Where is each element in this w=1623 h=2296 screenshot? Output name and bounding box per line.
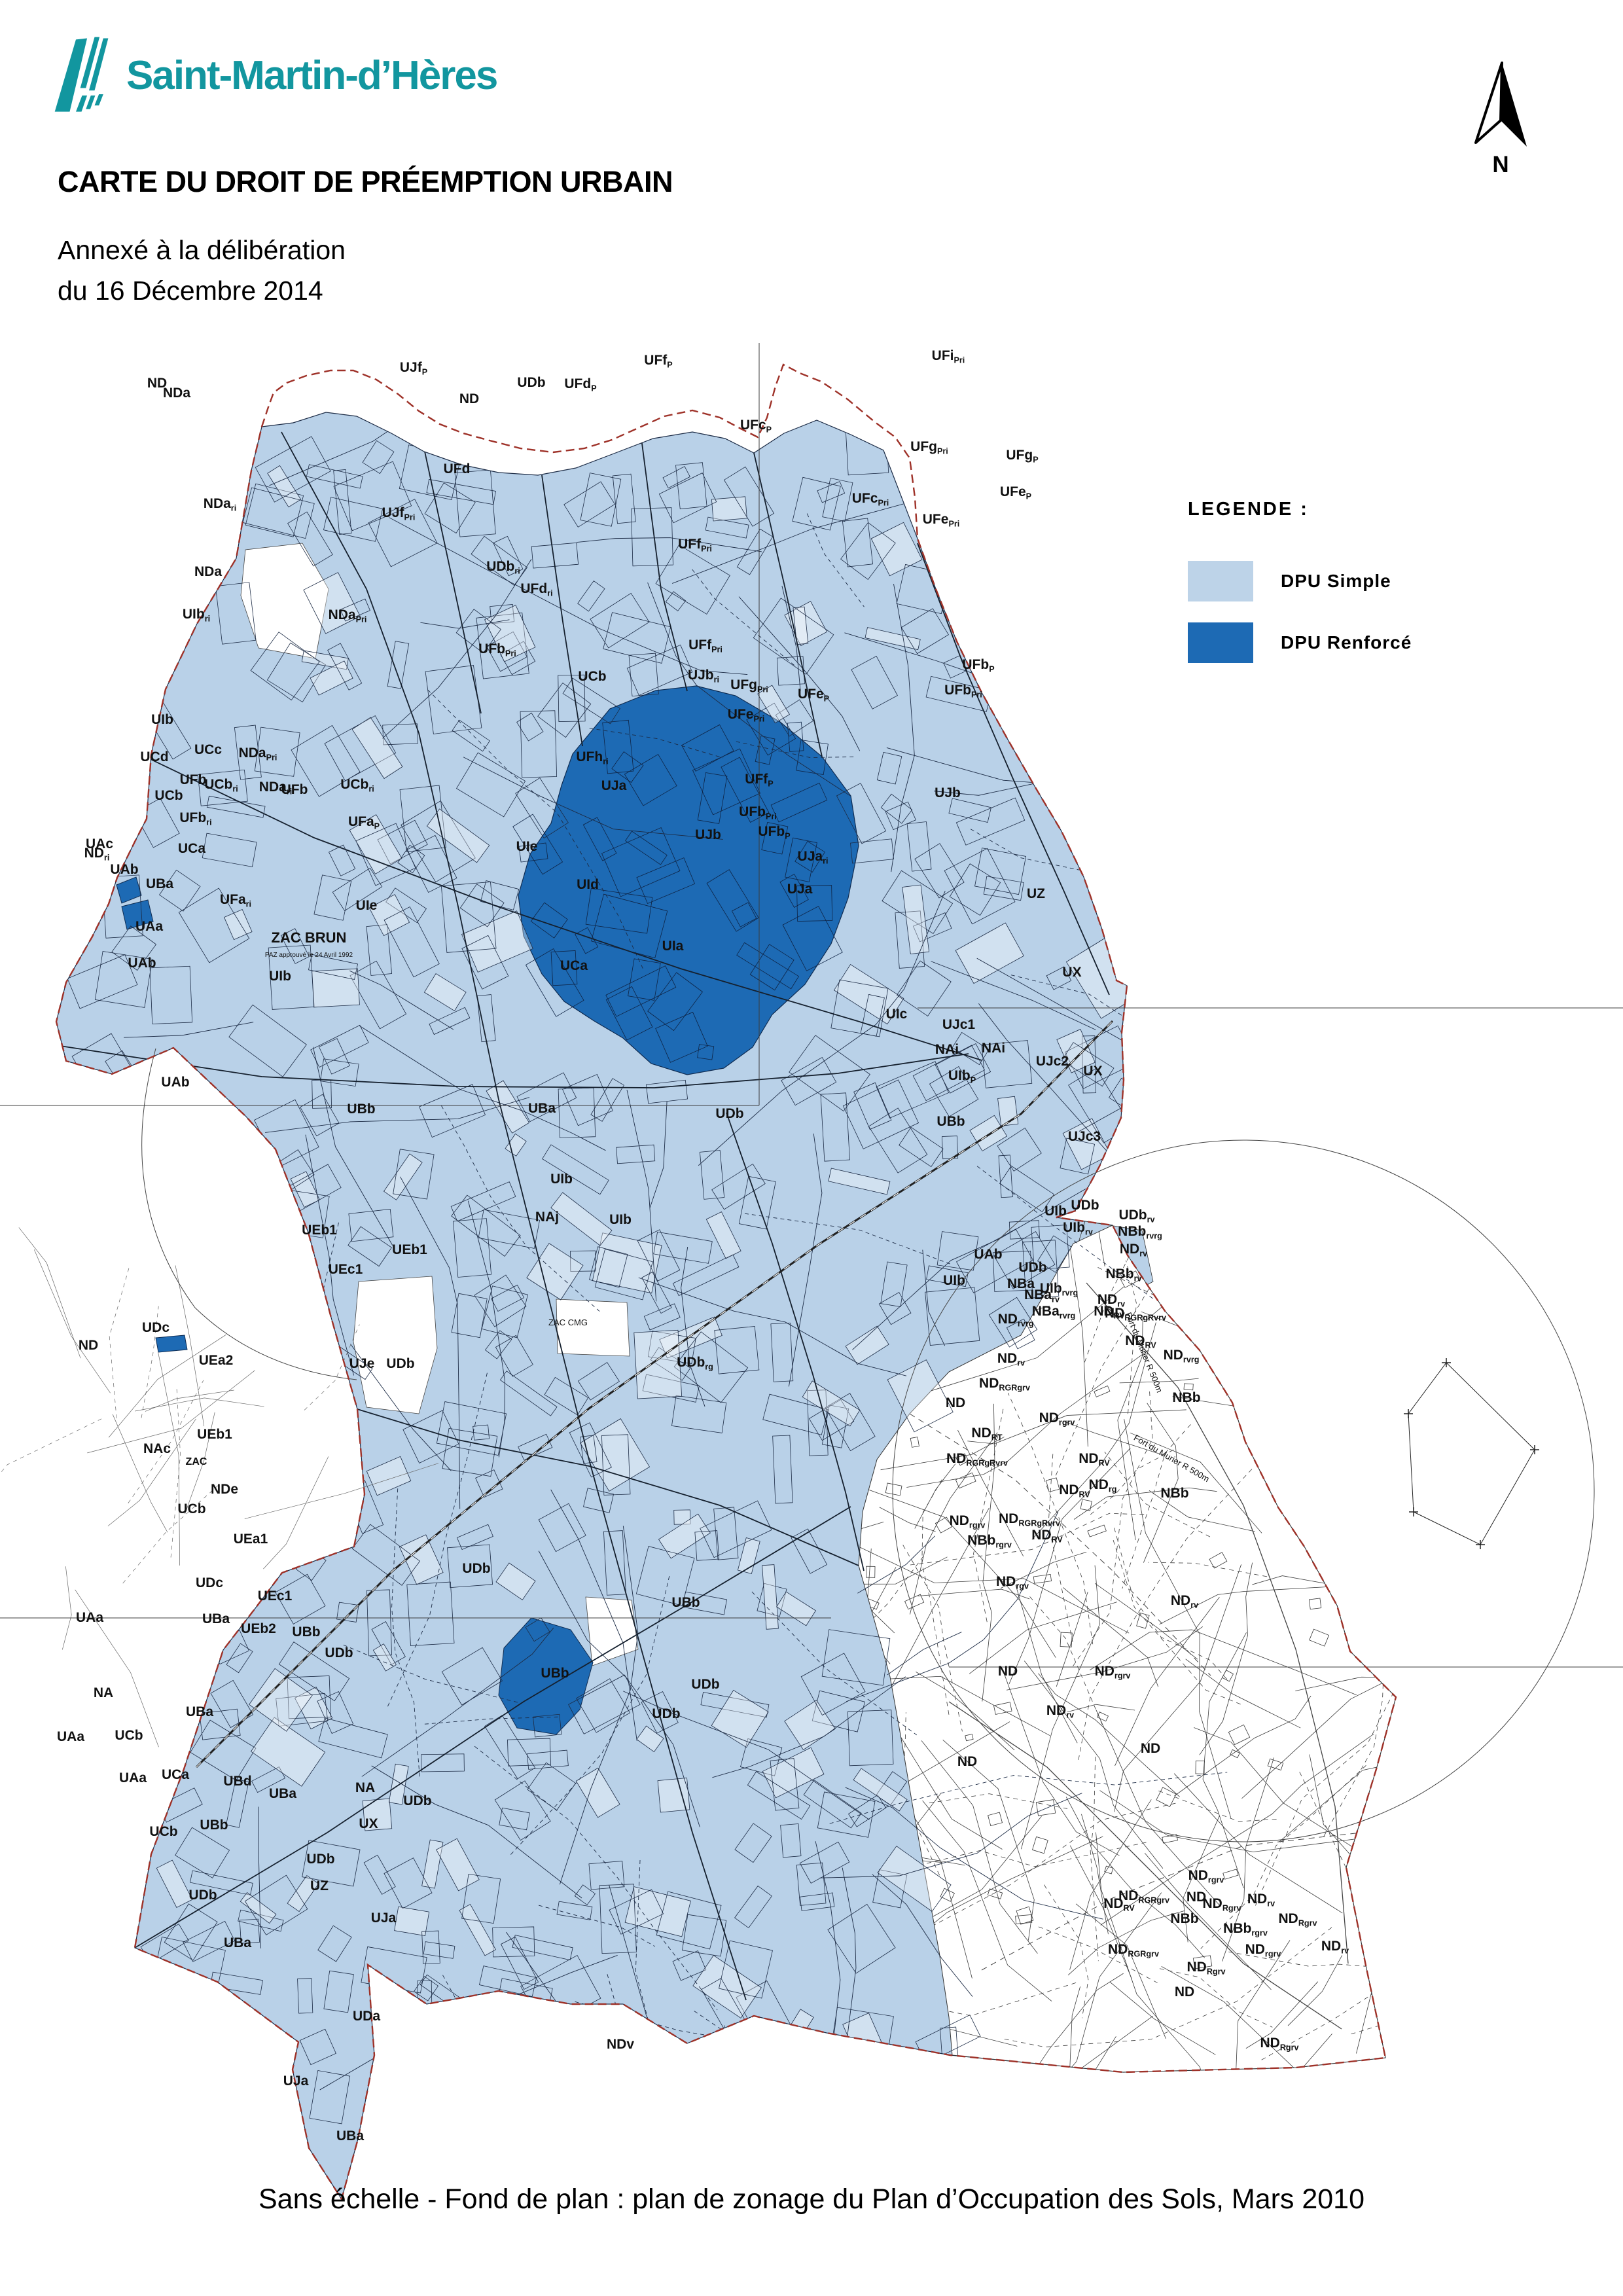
- zone-label: NDe: [211, 1482, 238, 1497]
- zone-label: UDc: [142, 1320, 169, 1335]
- zone-label: UEa2: [199, 1353, 234, 1368]
- legend-label-simple: DPU Simple: [1281, 571, 1391, 592]
- zone-label: UDb: [652, 1706, 680, 1721]
- zone-label: UX: [1083, 1064, 1102, 1079]
- zone-label: UEb1: [197, 1427, 232, 1442]
- zone-label: UDb: [306, 1852, 334, 1867]
- zone-label: UCb: [115, 1728, 143, 1743]
- zone-label: UAb: [128, 956, 156, 971]
- zone-label: UFgP: [1006, 448, 1038, 465]
- zone-label: UJa: [371, 1910, 397, 1926]
- zone-label: NBbrvrg: [1118, 1224, 1162, 1241]
- legend-item-renforce: DPU Renforcé: [1188, 622, 1412, 663]
- zone-label: PAZ approuvé le 24 Avril 1992: [265, 952, 353, 959]
- zone-label: UJa: [601, 778, 627, 793]
- north-indicator: N: [1465, 60, 1537, 178]
- subtitle: Annexé à la délibération du 16 Décembre …: [58, 230, 346, 311]
- north-label: N: [1465, 152, 1537, 178]
- legend-item-simple: DPU Simple: [1188, 561, 1412, 601]
- zone-label: NDa: [163, 386, 190, 401]
- zone-label: UEc1: [329, 1262, 363, 1277]
- zone-label: ZAC BRUN: [272, 929, 347, 946]
- zone-label: UFdP: [564, 376, 596, 393]
- zone-label: UDb: [1018, 1260, 1046, 1275]
- zone-label: ND: [79, 1338, 98, 1353]
- zone-label: UDbrv: [1118, 1208, 1154, 1225]
- logo: Saint-Martin-d’Hères: [51, 31, 497, 120]
- zone-label: UJb: [695, 827, 721, 842]
- zone-label: UDc: [196, 1575, 223, 1590]
- zone-label: UEb2: [241, 1621, 276, 1636]
- legend: LEGENDE : DPU Simple DPU Renforcé: [1188, 499, 1412, 684]
- legend-swatch-renforce-icon: [1188, 622, 1253, 663]
- zone-label: UBb: [671, 1595, 700, 1610]
- zone-label: UBd: [223, 1774, 251, 1789]
- zone-label: UIb: [943, 1273, 965, 1288]
- zone-label: UIb: [1044, 1204, 1067, 1219]
- zone-label: UBb: [541, 1666, 569, 1681]
- zone-label: UBa: [336, 2128, 364, 2144]
- zone-label: UJc3: [1068, 1129, 1101, 1144]
- zone-label: ZAC CMG: [548, 1318, 588, 1327]
- zone-label: UCa: [560, 958, 588, 973]
- zone-label: UAa: [119, 1770, 147, 1785]
- zone-label: UEb1: [392, 1242, 427, 1257]
- zone-label: UFd: [444, 461, 471, 476]
- zone-label: NAi: [982, 1041, 1005, 1056]
- zone-label: UZ: [310, 1878, 329, 1893]
- zone-label: UAc: [86, 836, 113, 852]
- zone-label: UDb: [462, 1561, 490, 1576]
- zone-label: NDa: [194, 564, 222, 579]
- smh-logo-icon: [51, 31, 113, 120]
- zone-label: UIb: [151, 712, 173, 727]
- zone-label: UFgPri: [910, 439, 948, 456]
- zone-label: UDb: [1071, 1198, 1099, 1213]
- zone-label: UDb: [517, 375, 545, 390]
- zone-label: UBb: [200, 1818, 228, 1833]
- map-canvas: NDNDaUJfPUDbUFdPNDUFfPUFiPriUFcPUFgPUFgP…: [0, 0, 1623, 2296]
- zone-label: UBb: [292, 1624, 320, 1640]
- zone-label: UAb: [110, 862, 138, 877]
- zone-label: UAa: [57, 1729, 84, 1744]
- zone-label: UX: [1062, 965, 1081, 980]
- page-title: CARTE DU DROIT DE PRÉEMPTION URBAIN: [58, 165, 673, 199]
- zone-label: UDb: [715, 1106, 743, 1121]
- subtitle-line-1: Annexé à la délibération: [58, 230, 346, 271]
- zone-label: UJb: [935, 785, 961, 800]
- zone-label: UJc1: [942, 1017, 976, 1032]
- zone-label: UIb: [269, 969, 291, 984]
- zone-label: UAa: [76, 1610, 103, 1625]
- legend-label-renforce: DPU Renforcé: [1281, 632, 1412, 653]
- zone-label: ND: [1175, 1984, 1194, 2000]
- zone-label: UEb1: [302, 1223, 337, 1238]
- zone-label: UCb: [154, 788, 183, 803]
- zone-label: UAb: [974, 1247, 1002, 1262]
- zone-label: UBa: [269, 1786, 296, 1801]
- zone-label: NAc: [143, 1441, 171, 1456]
- zone-label: UX: [359, 1816, 378, 1831]
- zone-label: UCb: [578, 669, 606, 684]
- zone-label: ND: [946, 1395, 965, 1410]
- logo-text: Saint-Martin-d’Hères: [126, 52, 497, 99]
- subtitle-line-2: du 16 Décembre 2014: [58, 271, 346, 312]
- zone-label: ND: [1141, 1741, 1160, 1756]
- zone-label: UBb: [347, 1102, 375, 1117]
- zone-label: UDb: [403, 1793, 431, 1808]
- zone-label: UJa: [787, 882, 813, 897]
- zone-label: UCb: [177, 1501, 205, 1516]
- zone-label: UJe: [349, 1356, 375, 1371]
- zone-label: UDa: [353, 2009, 380, 2024]
- zone-label: ND: [957, 1754, 977, 1769]
- zone-label: UEc1: [258, 1588, 293, 1604]
- footer-caption: Sans échelle - Fond de plan : plan de zo…: [0, 2183, 1623, 2215]
- zone-label: ND: [459, 391, 479, 406]
- zone-label: UCd: [140, 749, 168, 764]
- zone-label: UIb: [609, 1212, 632, 1227]
- zone-label: UBa: [202, 1611, 230, 1626]
- legend-title: LEGENDE :: [1188, 499, 1412, 520]
- zone-label: UFb: [281, 782, 308, 797]
- zone-label: UBa: [528, 1101, 556, 1116]
- zone-label: UEa1: [234, 1532, 268, 1547]
- zone-label: UId: [577, 877, 599, 892]
- zone-label: UJc2: [1036, 1054, 1069, 1069]
- document-page: NDNDaUJfPUDbUFdPNDUFfPUFiPriUFcPUFgPUFgP…: [0, 0, 1623, 2296]
- zone-label: UIb: [550, 1172, 573, 1187]
- zone-label: UCc: [194, 742, 222, 757]
- zone-label: UFb: [180, 772, 207, 787]
- zone-label: NDari: [204, 496, 236, 513]
- zone-label: UBa: [146, 876, 173, 891]
- zone-label: UDb: [691, 1677, 719, 1692]
- zone-label: NBb: [1170, 1911, 1198, 1926]
- zone-label: ZAC: [186, 1456, 207, 1467]
- zone-label: NBb: [1172, 1390, 1200, 1405]
- zone-label: UFcP: [740, 418, 772, 435]
- zone-label: UDb: [188, 1888, 217, 1903]
- zone-label: UIe: [516, 839, 538, 854]
- zone-label: UBa: [186, 1704, 213, 1719]
- zone-label: UFiPri: [932, 348, 965, 365]
- zone-label: UBa: [224, 1935, 251, 1950]
- zone-label: UIc: [886, 1007, 908, 1022]
- legend-swatch-simple-icon: [1188, 561, 1253, 601]
- zone-label: NAj: [535, 1210, 559, 1225]
- zone-label: UAa: [135, 919, 163, 934]
- zone-label: UIa: [662, 939, 684, 954]
- zone-label: UCb: [149, 1824, 177, 1839]
- zone-label: NA: [355, 1780, 375, 1795]
- zone-label: UDb: [325, 1645, 353, 1660]
- zone-label: UFbP: [962, 657, 994, 674]
- zone-label: UIe: [356, 898, 378, 913]
- zone-label: NAi: [935, 1042, 959, 1057]
- zone-label: UAb: [161, 1075, 189, 1090]
- zone-label: UFeP: [1000, 484, 1031, 501]
- zone-label: UCa: [162, 1767, 189, 1782]
- zone-label: UFfP: [644, 353, 672, 370]
- zone-label: UZ: [1027, 886, 1045, 901]
- zone-label: UDb: [386, 1356, 414, 1371]
- north-arrow-icon: [1468, 60, 1533, 149]
- zone-label: NDv: [607, 2037, 634, 2052]
- zone-label: NA: [94, 1685, 113, 1700]
- zone-label: ND: [998, 1664, 1018, 1679]
- zone-label: UCa: [178, 841, 205, 856]
- zone-label: UJa: [283, 2073, 309, 2089]
- zone-label: UBb: [936, 1114, 965, 1129]
- zone-label: UJfP: [400, 360, 427, 377]
- zone-label: UFePri: [923, 512, 960, 529]
- zone-label: NBb: [1160, 1486, 1188, 1501]
